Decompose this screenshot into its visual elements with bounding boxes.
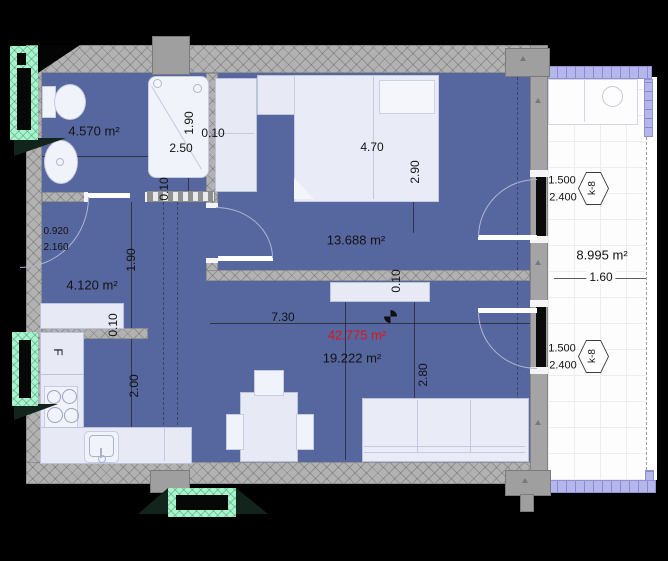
kitchen-faucet-base	[98, 455, 106, 463]
total-area-label: 42.775 m²	[328, 329, 387, 342]
sofa-seam	[417, 400, 418, 452]
stove-burner	[47, 407, 63, 423]
stove-burner	[64, 408, 79, 423]
bathroom-width-dim: 2.50	[169, 142, 192, 154]
toilet-bowl	[54, 84, 86, 120]
duct-shaft-top-left	[152, 36, 190, 75]
bathroom-area-label: 4.570 m²	[68, 125, 119, 138]
window-height-label: 2.400	[549, 193, 577, 204]
divider-wall-dim: 0.10	[390, 269, 402, 292]
window-code-label: k-8	[588, 181, 598, 195]
corridor-dashed-line	[177, 202, 178, 460]
sofa-front-line	[364, 452, 525, 453]
shower-head-icon	[153, 79, 162, 88]
balcony-railing-top	[548, 66, 652, 79]
stove-burner	[47, 390, 61, 404]
hall-area-label: 4.120 m²	[66, 279, 117, 292]
balcony-edge-strip	[646, 77, 657, 480]
north-pinwheel-icon	[384, 310, 397, 323]
kitchen-window	[12, 332, 38, 406]
bed-pillow	[379, 80, 435, 114]
bathroom-window	[10, 46, 38, 140]
bed-width-dim: 4.70	[360, 141, 383, 153]
hall-wall-dim: 0.10	[107, 313, 119, 336]
window-height-label: 2.400	[549, 361, 577, 372]
balcony-sink-icon	[602, 86, 623, 107]
sofa-seam	[470, 400, 471, 452]
wall-bedroom-living-divider	[206, 270, 530, 281]
bathroom-wall-dim: 0.10	[158, 177, 170, 200]
living-area-label: 19.222 m²	[323, 352, 382, 365]
window-width-label: 1.500	[548, 176, 576, 187]
insulation-tick-icon	[520, 56, 526, 61]
living-width-dim: 7.30	[271, 311, 294, 323]
balcony-cabinet	[548, 79, 638, 125]
balcony-door-threshold	[536, 307, 546, 367]
insulation-tick-icon	[535, 98, 541, 103]
wall-bottom	[26, 462, 548, 484]
living-height-dim: 2.80	[417, 363, 429, 386]
chair-right	[296, 414, 314, 450]
sofa-front-line	[364, 446, 525, 447]
kitchen-height-dim: 2.00	[128, 374, 140, 397]
insulation-tick-icon	[535, 260, 541, 265]
dining-table	[240, 392, 298, 462]
bathroom-height-dim: 1.90	[183, 111, 195, 134]
wall-top	[36, 45, 548, 73]
balcony-door-jamb	[530, 300, 548, 307]
chair-top	[254, 370, 284, 396]
dresser	[330, 282, 430, 302]
window-shadow	[236, 488, 268, 514]
floor-plan: 4.570 m² 1.90 2.50 0.10 0.10 0.920 2.160…	[0, 0, 668, 561]
bedroom-wall-dim: 0.10	[201, 127, 224, 139]
insulation-tick-icon	[535, 420, 541, 425]
window-code-label: k-8	[588, 349, 598, 363]
living-window	[168, 488, 236, 517]
hall-height-dim: 1.90	[125, 248, 137, 271]
balcony-cabinet-divider	[584, 80, 585, 122]
window-width-label: 1.500	[548, 344, 576, 355]
balcony-door-threshold	[536, 177, 546, 236]
duct-shaft-bottom-tail	[520, 494, 534, 512]
bedroom-door-jamb	[206, 258, 218, 263]
bathroom-door-leaf	[88, 193, 130, 198]
shower-drain	[193, 84, 202, 93]
bathroom-sink-drain	[56, 158, 64, 166]
balcony-railing-bottom	[548, 480, 656, 493]
balcony-door-jamb	[530, 170, 548, 177]
door-width-label: 0.920	[43, 227, 68, 237]
corridor-dashed-line	[163, 202, 164, 460]
balcony-railing-right	[644, 79, 653, 137]
stove-burner	[62, 389, 77, 404]
dim-line-living-vertical	[345, 285, 346, 460]
balcony-width-dim: 1.60	[586, 271, 615, 283]
duct-shaft-top-right	[505, 48, 550, 77]
balcony-area-label: 8.995 m²	[576, 249, 627, 262]
duct-shaft-bottom-right	[505, 470, 551, 496]
fridge-label: F	[52, 348, 64, 355]
bedroom-area-label: 13.688 m²	[327, 234, 386, 247]
chair-left	[226, 414, 244, 450]
bed-blanket-line	[373, 76, 374, 199]
door-height-label: 2.160	[43, 243, 68, 253]
kitchen-counter-seam	[164, 428, 165, 461]
insulation-tick-icon	[522, 478, 528, 483]
nightstand	[257, 75, 296, 115]
bed-height-dim: 2.90	[409, 160, 421, 183]
